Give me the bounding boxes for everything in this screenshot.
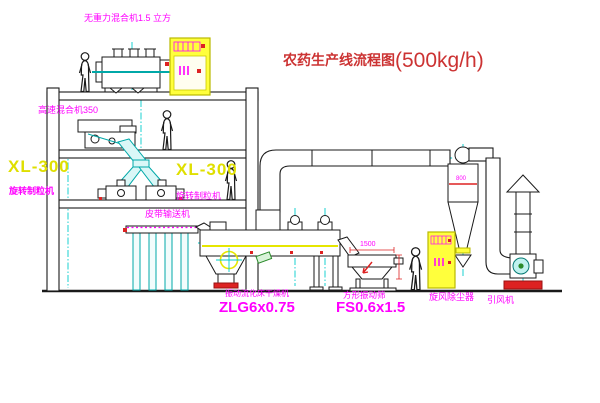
zero-gravity-mixer xyxy=(92,49,170,93)
title-capacity: (500kg/h) xyxy=(395,49,484,72)
label-belt-conveyor: 皮带输送机 xyxy=(145,210,190,219)
diagram-title: 农药生产线流程图(500kg/h) xyxy=(283,50,484,71)
label-mid-granulator-model: XL-300 xyxy=(176,161,238,178)
dim-cyclone-width: 800 xyxy=(456,176,466,182)
control-cabinet-ground xyxy=(428,232,455,288)
dryer-exhaust-duct xyxy=(260,150,450,212)
person-icon xyxy=(162,111,173,150)
label-cyclone: 旋风除尘器 xyxy=(429,293,474,302)
rotary-granulators xyxy=(98,180,184,200)
dim-screen-length: 1500 xyxy=(360,241,376,248)
label-left-granulator-name: 旋转制粒机 xyxy=(9,187,54,196)
control-cabinet-top xyxy=(170,38,210,95)
induced-draft-fan xyxy=(504,175,543,289)
label-screen-model: FS0.6x1.5 xyxy=(336,300,405,315)
fluid-bed-dryer xyxy=(196,210,342,290)
label-high-speed-mixer: 高速混合机350 xyxy=(38,106,98,115)
label-dryer-model: ZLG6x0.75 xyxy=(219,300,295,315)
person-icon xyxy=(80,53,91,92)
belt-conveyor xyxy=(123,226,198,290)
label-fan: 引风机 xyxy=(487,296,514,305)
flow-diagram: 农药生产线流程图(500kg/h) 无重力混合机1.5 立方 高速混合机350 … xyxy=(0,0,600,403)
person-icon xyxy=(410,248,422,290)
label-dryer-name: 振动流化床干燥机 xyxy=(225,290,289,298)
label-left-granulator-model: XL-300 xyxy=(8,158,70,175)
label-mid-granulator-name: 旋转制粒机 xyxy=(176,192,221,201)
title-text: 农药生产线流程图 xyxy=(283,52,395,68)
label-gravity-mixer: 无重力混合机1.5 立方 xyxy=(84,14,171,23)
